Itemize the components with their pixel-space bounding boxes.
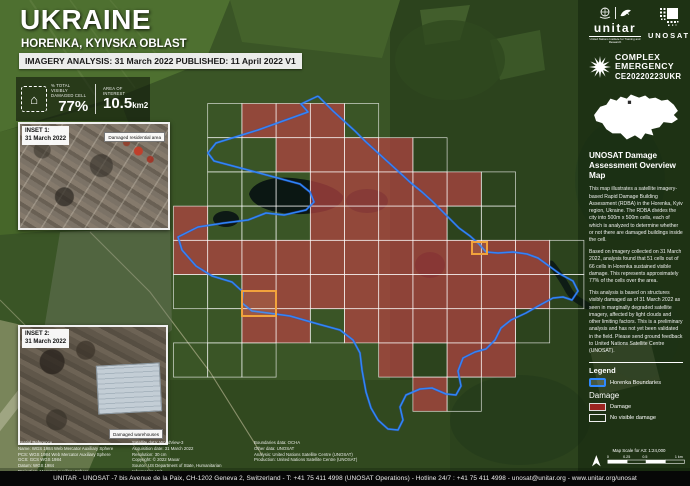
sidebar-paragraph-2: Based on imagery collected on 31 March 2…	[589, 249, 683, 285]
svg-text:0.25: 0.25	[623, 455, 630, 459]
warehouse-roof	[96, 362, 163, 414]
damaged-percent-label: % TOTAL VISIBLY DAMAGED CELL	[51, 83, 88, 99]
inset-2-annotation: Damaged warehouses	[109, 429, 163, 439]
legend-divider	[589, 362, 683, 363]
legend-item-no-damage: No visible damage	[589, 414, 683, 422]
unosat-pixel-icon	[657, 5, 681, 29]
inset-1-annotation: Damaged residential area	[104, 132, 165, 142]
north-arrow-icon	[592, 455, 601, 467]
sidebar: unitar United Nations Institute for Trai…	[584, 0, 690, 470]
stats-divider	[95, 84, 96, 114]
unitar-wordmark: unitar	[594, 22, 636, 34]
damaged-cell-icon: ⌂	[21, 86, 47, 112]
unosat-logo: UNOSAT	[648, 5, 690, 40]
scale-bar: 0 0.25 0.5 1 km	[604, 454, 686, 467]
svg-text:0: 0	[606, 455, 608, 459]
sidebar-paragraph-1: This map illustrates a satellite imagery…	[589, 186, 683, 244]
inset-1-title: INSET 1: 31 March 2022	[22, 126, 69, 145]
un-emblem-icon	[598, 6, 612, 20]
emergency-star-icon	[589, 56, 611, 78]
page-subtitle: HORENKA, KYIVSKA OBLAST	[21, 38, 187, 50]
damaged-percent-value: 77%	[51, 99, 88, 116]
sidebar-paragraph-3: This analysis is based on structures vis…	[589, 290, 683, 355]
footer-bar: UNITAR - UNOSAT -7 bis Avenue de la Paix…	[0, 471, 690, 486]
unitar-tagline: United Nations Institute for Training an…	[589, 36, 641, 45]
ukraine-locator-map	[590, 88, 682, 144]
legend-item-damage: Damage	[589, 403, 683, 411]
area-of-interest-value: 10.5km2	[103, 96, 141, 113]
no-damage-swatch	[589, 414, 606, 422]
inset-1-image: INSET 1: 31 March 2022 Damaged residenti…	[18, 122, 170, 230]
emergency-code: CE20220223UKR	[615, 73, 681, 81]
damage-swatch	[589, 403, 606, 411]
complex-emergency-block: COMPLEX EMERGENCY CE20220223UKR	[589, 53, 683, 80]
svg-text:1 km: 1 km	[675, 455, 683, 459]
legend-damage-heading: Damage	[589, 391, 683, 400]
stats-box: ⌂ % TOTAL VISIBLY DAMAGED CELL 77% AREA …	[16, 77, 150, 121]
dove-emblem-icon	[619, 6, 633, 20]
logo-row: unitar United Nations Institute for Trai…	[589, 5, 683, 44]
area-of-interest-label: AREA OF INTEREST	[103, 86, 141, 97]
emergency-line2: EMERGENCY	[615, 62, 681, 71]
scale-block: Map Scale for A3: 1:24,000 0 0.25 0.5 1 …	[592, 448, 686, 467]
inset-2-image: INSET 2: 31 March 2022 Damaged warehouse…	[18, 325, 168, 445]
imagery-analysis-banner: IMAGERY ANALYSIS: 31 March 2022 PUBLISHE…	[19, 53, 302, 69]
map-scale-text: Map Scale for A3: 1:24,000	[592, 448, 686, 453]
legend-item-boundaries: Horenka Boundaries	[589, 378, 683, 387]
unosat-wordmark: UNOSAT	[648, 31, 690, 40]
sidebar-heading: UNOSAT Damage Assessment Overview Map	[589, 151, 683, 182]
unitar-logo: unitar United Nations Institute for Trai…	[589, 5, 641, 44]
svg-text:0.5: 0.5	[642, 455, 647, 459]
map-page: UKRAINE HORENKA, KYIVSKA OBLAST IMAGERY …	[0, 0, 690, 486]
page-title: UKRAINE	[20, 4, 151, 36]
legend-title: Legend	[589, 366, 683, 375]
area-unit: km2	[132, 101, 148, 110]
horenka-location-dot	[628, 100, 631, 103]
boundary-swatch	[589, 378, 606, 387]
contact-line: UNITAR - UNOSAT -7 bis Avenue de la Paix…	[53, 475, 637, 482]
inset-2-title: INSET 2: 31 March 2022	[22, 329, 69, 348]
